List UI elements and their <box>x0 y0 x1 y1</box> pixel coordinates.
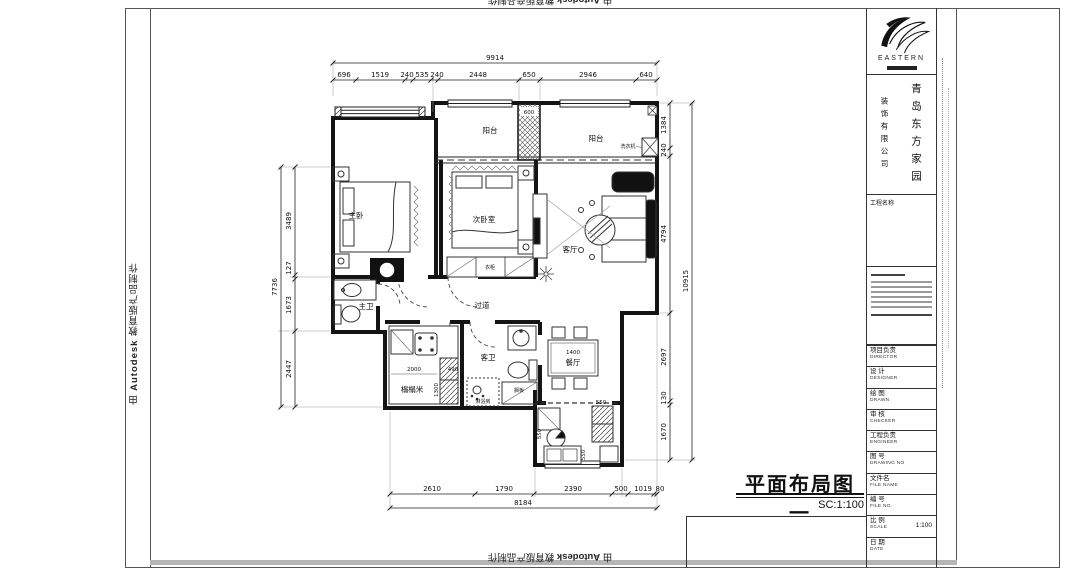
second-bed <box>452 166 534 254</box>
field-file-name: 文件名 FILE NAME <box>867 473 936 494</box>
svg-text:2946: 2946 <box>579 71 597 79</box>
drawing-sheet: 由 Autodesk 教育版产品制作 由 Autodesk 教育版产品制作 由 … <box>0 0 1074 576</box>
guest-bath-fixtures <box>467 326 537 406</box>
title-block-logo-section: EASTERN <box>867 8 936 75</box>
svg-text:535: 535 <box>415 71 428 79</box>
svg-text:240: 240 <box>660 143 668 156</box>
room-label-dining: 餐厅 <box>566 358 581 367</box>
kitchen-fixtures <box>538 406 618 464</box>
plant-icon <box>538 266 554 282</box>
room-label-corridor: 过道 <box>475 300 490 310</box>
svg-text:2000: 2000 <box>407 367 421 373</box>
field-drawing-no: 图 号 DRAWING NO <box>867 451 936 472</box>
svg-text:1670: 1670 <box>660 423 668 441</box>
svg-text:9914: 9914 <box>486 54 504 62</box>
svg-text:3489: 3489 <box>285 212 293 230</box>
title-underline <box>736 497 864 498</box>
logo-wordmark: EASTERN <box>867 55 936 62</box>
balcony-window-band <box>436 157 657 163</box>
svg-text:696: 696 <box>337 71 351 79</box>
field-scale: 比 例 SCALE 1:100 <box>867 515 936 536</box>
svg-text:7736: 7736 <box>271 278 279 296</box>
notes-line <box>871 286 932 288</box>
svg-text:2610: 2610 <box>423 485 441 493</box>
bottom-dimension-chain: 2610 1790 2390 500 1019 80 8184 <box>388 485 665 511</box>
room-label-guest-bath: 客卫 <box>481 352 496 362</box>
field-date: 日 期 DATE <box>867 537 936 558</box>
hatch-squiggle <box>452 166 516 170</box>
eastern-logo <box>873 12 931 56</box>
logo-subtext-bar <box>887 66 917 70</box>
top-dimension-chain: 9914 696 1519 240 535 240 2448 650 2946 … <box>331 54 660 83</box>
svg-text:127: 127 <box>285 261 293 274</box>
shelf-label: 搁板 <box>514 387 524 394</box>
svg-text:2697: 2697 <box>660 348 668 366</box>
company-name: 青岛东方家园 <box>909 83 924 188</box>
room-label-master-bedroom: 主卧 <box>349 210 364 220</box>
side-notes-strip <box>937 8 956 561</box>
notes-line <box>871 291 932 293</box>
field-designer: 设 计 DESIGNER <box>867 366 936 387</box>
svg-text:1400: 1400 <box>566 350 580 356</box>
field-drawn: 绘 图 DRAWN <box>867 388 936 409</box>
svg-text:4794: 4794 <box>660 225 668 243</box>
notes-line <box>871 301 932 303</box>
field-engineer: 工程负责 ENGINEER <box>867 430 936 451</box>
svg-text:8184: 8184 <box>514 499 532 507</box>
room-label-balcony-right: 阳台 <box>589 133 604 143</box>
master-bed <box>333 167 410 268</box>
svg-text:1519: 1519 <box>371 71 389 79</box>
notes-line <box>871 281 932 283</box>
svg-text:1673: 1673 <box>285 296 293 314</box>
room-label-master-bath: 主卫 <box>359 301 374 311</box>
svg-text:1790: 1790 <box>495 485 513 493</box>
svg-text:550: 550 <box>596 400 607 406</box>
project-name-label: 工程名称 <box>867 195 936 210</box>
svg-text:130: 130 <box>660 391 668 404</box>
title-block-fields: 项目负责 DIRECTOR 设 计 DESIGNER 绘 图 DRAWN 审 核… <box>867 345 936 558</box>
svg-text:10915: 10915 <box>682 270 690 292</box>
company-sub: 装饰有限公司 <box>879 97 890 172</box>
svg-text:1300: 1300 <box>434 383 440 397</box>
svg-text:1019: 1019 <box>634 485 652 493</box>
living-furniture <box>533 172 656 262</box>
balcony-pier: 600 <box>518 103 540 160</box>
notes-line <box>871 274 905 276</box>
title-underline <box>736 493 864 495</box>
notes-line <box>871 296 932 298</box>
tatami-room <box>389 326 458 404</box>
svg-text:650: 650 <box>522 71 535 79</box>
title-block: EASTERN 青岛东方家园 装饰有限公司 工程名称 项目负责 DIRECTOR <box>866 8 937 568</box>
svg-text:2447: 2447 <box>285 360 293 378</box>
title-box-line <box>686 516 687 568</box>
left-dimension-chain: 3489 127 1673 2447 7736 <box>271 165 298 410</box>
wardrobe-label: 衣柜 <box>485 264 495 271</box>
svg-text:550: 550 <box>581 449 587 460</box>
right-dimension-chain: 1384 240 4794 2697 130 1670 10915 <box>660 101 695 463</box>
svg-text:600: 600 <box>524 110 535 116</box>
svg-text:2448: 2448 <box>469 71 487 79</box>
scale-value: 1:100 <box>916 522 932 529</box>
wardrobe: 衣柜 <box>447 257 534 277</box>
shower-label: 淋浴房 <box>475 398 490 405</box>
field-checker: 审 核 CHECKER <box>867 409 936 430</box>
title-block-notes-section <box>867 267 936 345</box>
svg-text:2390: 2390 <box>564 485 582 493</box>
washing-machine-label: 洗衣机 <box>620 143 635 150</box>
svg-text:490: 490 <box>448 367 459 373</box>
svg-text:550: 550 <box>537 428 543 439</box>
svg-text:1384: 1384 <box>660 116 668 134</box>
hatch-squiggle <box>414 186 418 246</box>
svg-text:240: 240 <box>430 71 443 79</box>
title-block-project-section: 工程名称 <box>867 195 936 267</box>
field-file-no: 编 号 FILE NO. <box>867 494 936 515</box>
notes-line <box>871 306 932 308</box>
washing-machine: 洗衣机 <box>620 106 658 156</box>
notes-line <box>871 314 932 316</box>
room-label-tatami: 榻榻米 <box>401 384 424 394</box>
svg-text:640: 640 <box>639 71 652 79</box>
svg-text:500: 500 <box>614 485 627 493</box>
svg-text:240: 240 <box>400 71 413 79</box>
room-label-second-bedroom: 次卧室 <box>473 214 496 224</box>
drawing-scale: SC:1:100 <box>764 499 864 511</box>
svg-text:80: 80 <box>656 485 665 493</box>
dresser <box>370 258 404 282</box>
room-label-living: 客厅 <box>563 244 578 254</box>
title-block-company-section: 青岛东方家园 装饰有限公司 <box>867 75 936 195</box>
field-director: 项目负责 DIRECTOR <box>867 345 936 366</box>
room-label-balcony-left: 阳台 <box>483 125 498 135</box>
